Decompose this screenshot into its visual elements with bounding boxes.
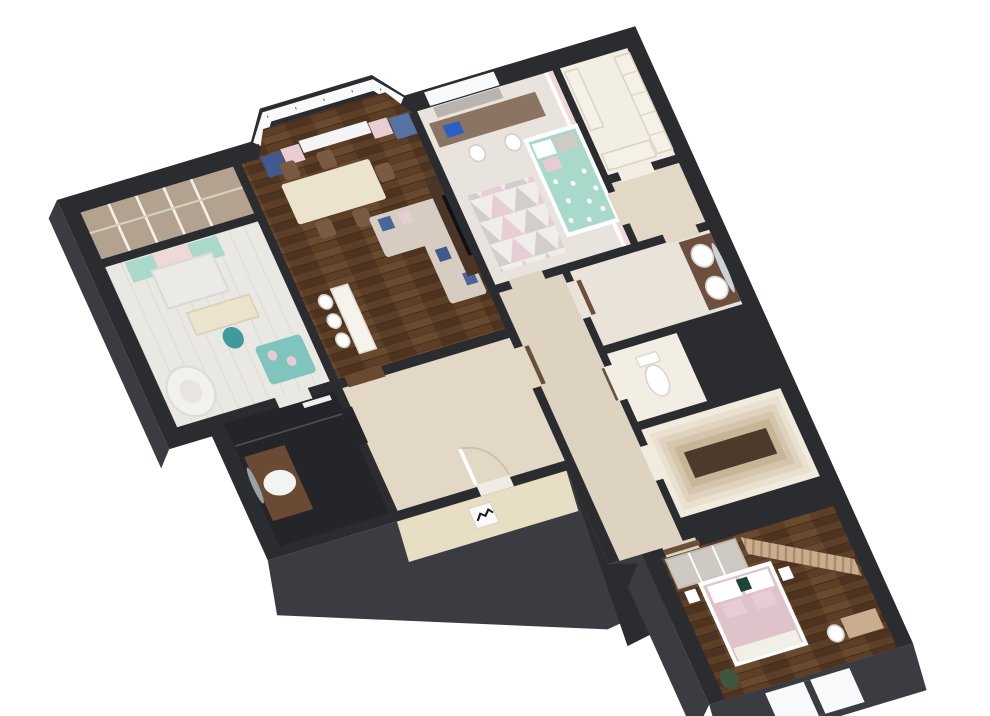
floorplan-render: 3D rendered floor plan of an L-shaped ap…: [0, 0, 990, 716]
apartment: [30, 0, 933, 716]
floorplan-svg: 3D rendered floor plan of an L-shaped ap…: [0, 0, 990, 716]
